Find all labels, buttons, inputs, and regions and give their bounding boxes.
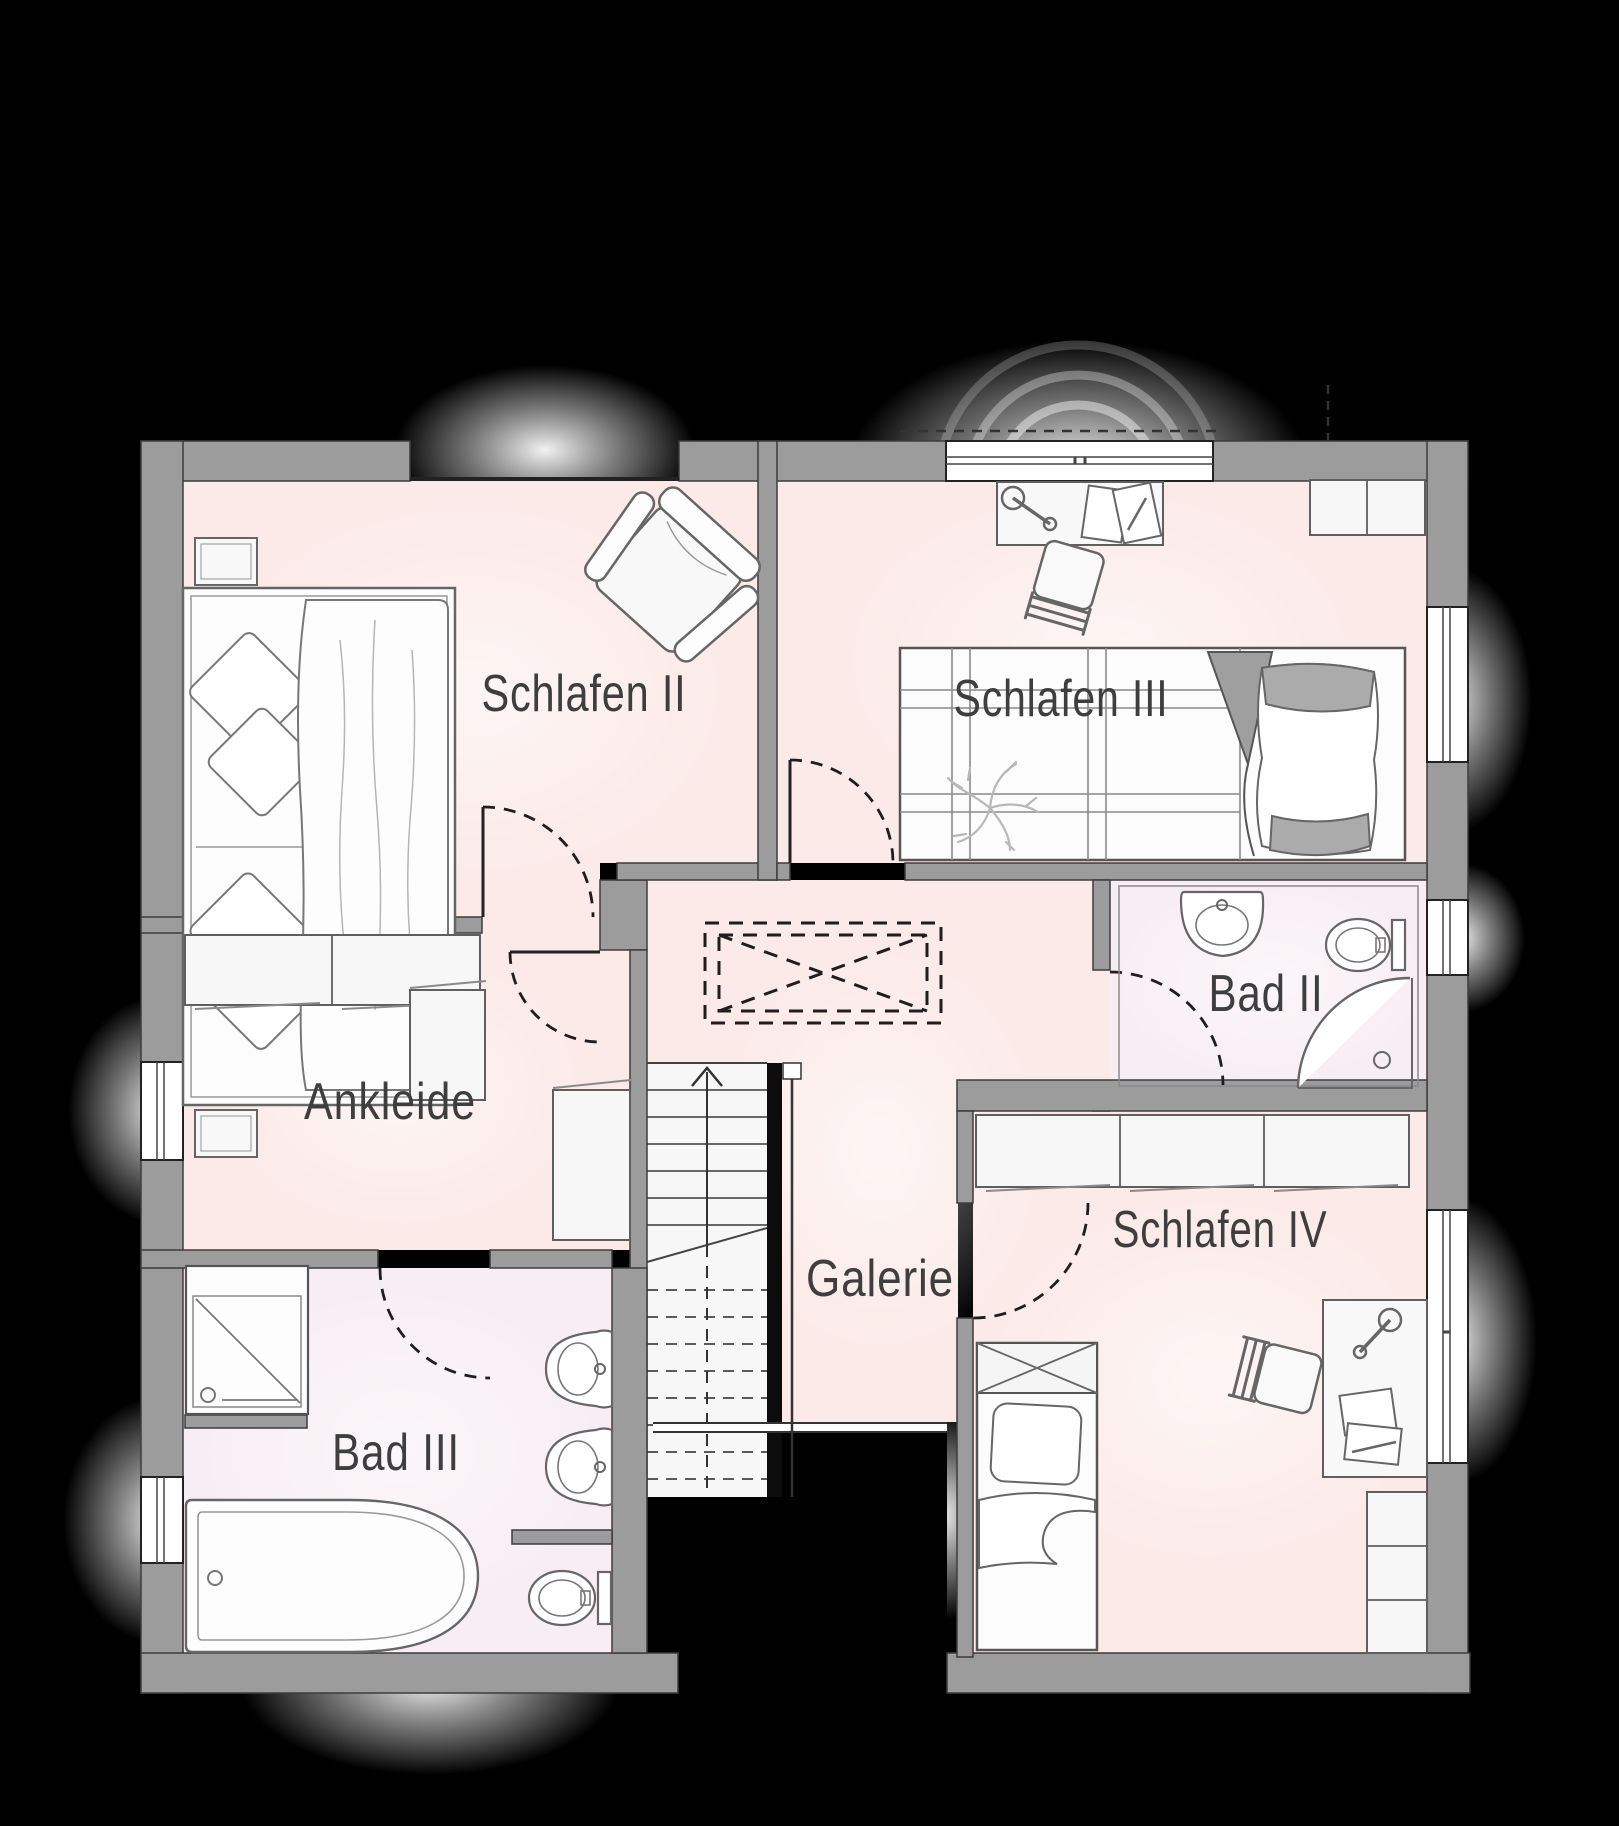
nightstand-icon [195, 1110, 257, 1157]
wall-bottom-left [141, 1653, 678, 1693]
wardrobe-icon [1310, 480, 1425, 535]
wall-bad3-east [612, 1268, 647, 1653]
single-bed-icon [977, 1343, 1097, 1650]
wall-top-mid [679, 441, 946, 481]
room-label-bad-2: Bad II [1209, 965, 1324, 1023]
papers-icon [1344, 1423, 1401, 1464]
wall-schlafen4-west-upper [957, 1111, 973, 1203]
wall-shower-stub [185, 1415, 307, 1428]
cabinet-icon [553, 1080, 631, 1240]
nightstand-icon [195, 538, 257, 585]
wall-bottom-right [947, 1653, 1470, 1693]
floor-plan-canvas: Schlafen II Schlafen III Bad II Ankleide… [0, 0, 1619, 1826]
shelf-icon [1367, 1492, 1427, 1653]
room-label-ankleide: Ankleide [304, 1073, 476, 1131]
wall-bad2-west [1093, 880, 1110, 970]
wall-schlafen2-schlafen3 [758, 441, 777, 880]
pillow-icon [1257, 664, 1378, 855]
room-label-schlafen-2: Schlafen II [482, 665, 687, 723]
window-icon [1427, 900, 1468, 975]
pillow-icon [990, 1403, 1082, 1485]
wall-ankleide-bad3-right [490, 1250, 612, 1268]
desk-icon [1323, 1300, 1427, 1477]
shower-icon [186, 1266, 308, 1414]
wall-schlafen3-south [905, 863, 1427, 880]
wall-schlafen4-west-lower [957, 1318, 973, 1657]
roof-edge-line [410, 477, 679, 481]
window-icon [1427, 607, 1468, 762]
wall-schlafen4-north [957, 1080, 1427, 1111]
bathtub-icon [186, 1500, 478, 1652]
toilet-icon [1326, 919, 1405, 971]
window-icon [141, 1062, 183, 1160]
room-label-bad-3: Bad III [332, 1424, 460, 1482]
room-label-schlafen-4: Schlafen IV [1113, 1201, 1328, 1259]
window-icon [1427, 1210, 1468, 1463]
toilet-icon [529, 1571, 611, 1625]
window-icon [141, 1477, 183, 1563]
room-label-schlafen-3: Schlafen III [954, 670, 1169, 728]
desk-icon [997, 482, 1163, 545]
wardrobe-row-icon [976, 1115, 1409, 1191]
wall-sink-stub [512, 1530, 612, 1544]
room-label-galerie: Galerie [806, 1250, 954, 1308]
floor-plan: Schlafen II Schlafen III Bad II Ankleide… [0, 0, 1619, 1826]
